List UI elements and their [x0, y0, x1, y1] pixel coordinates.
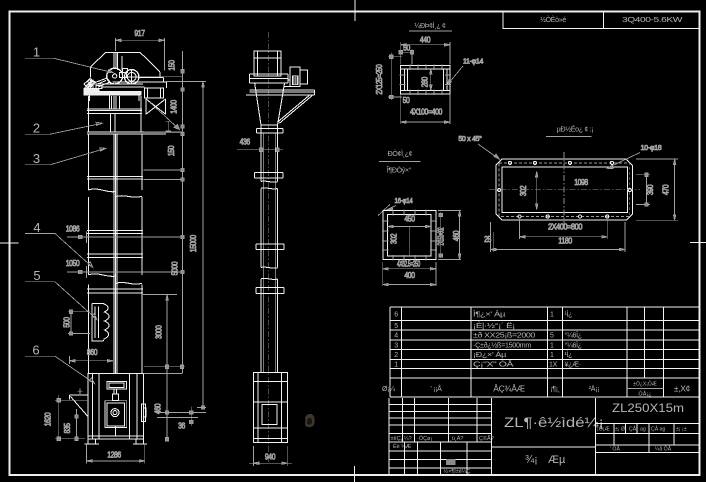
svg-text:¾¡: ¾¡: [525, 454, 538, 466]
svg-text:·Ç±ð¿½ß=1500mm: ·Ç±ð¿½ß=1500mm: [473, 341, 531, 349]
svg-text:4: 4: [394, 333, 398, 340]
svg-text:µÐ½Éо¿ ¢ :¡: µÐ½Éо¿ ¢ :¡: [557, 125, 594, 134]
svg-text:436: 436: [240, 137, 251, 147]
svg-text:ÇÅ: ÇÅ: [629, 426, 637, 433]
svg-text:5000: 5000: [170, 261, 180, 275]
svg-text:1: 1: [33, 45, 40, 60]
svg-text:5: 5: [33, 268, 40, 283]
svg-text:2X125=250: 2X125=250: [374, 64, 384, 95]
svg-text:150: 150: [166, 145, 176, 156]
svg-text:3000: 3000: [154, 325, 164, 339]
svg-text:50: 50: [403, 43, 410, 53]
svg-text:¥¿Æ·: ¥¿Æ·: [565, 361, 581, 368]
svg-text:Ø¡¼: Ø¡¼: [382, 386, 395, 393]
svg-text:±¡ Ø¡: ±¡ Ø¡: [615, 427, 627, 433]
svg-text:16-φ14: 16-φ14: [395, 198, 413, 205]
svg-text:6: 6: [32, 343, 39, 358]
svg-text:±ð XX25¡ß=2000: ±ð XX25¡ß=2000: [473, 332, 536, 340]
svg-text:¡Ö¡Æ: ¡Ö¡Æ: [597, 426, 610, 433]
svg-text:¸ü¸Ä?: ¸ü¸Ä?: [450, 435, 463, 442]
svg-text:¡Ð¿×' Àµ: ¡Ð¿×' Àµ: [473, 350, 506, 359]
svg-text:11-φ14: 11-φ14: [463, 59, 484, 66]
svg-text:25: 25: [484, 234, 491, 244]
svg-text:280: 280: [420, 76, 430, 87]
svg-text:1: 1: [550, 342, 554, 349]
svg-text:¼å ÒÅ: ¼å ÒÅ: [655, 446, 672, 453]
svg-text:400: 400: [404, 270, 415, 280]
svg-text:460: 460: [451, 230, 461, 241]
svg-text:°¼6Ì¿: °¼6Ì¿: [565, 331, 582, 340]
svg-text:¹Ì¿: ¹Ì¿: [565, 350, 573, 359]
svg-text:50: 50: [403, 95, 410, 105]
svg-text:3: 3: [394, 342, 398, 349]
svg-text:°¼6Ì¿: °¼6Ì¿: [565, 340, 582, 349]
svg-text:½ÒÈò»é: ½ÒÈò»é: [540, 15, 566, 24]
svg-text:1: 1: [550, 312, 554, 319]
svg-text:4: 4: [33, 220, 40, 235]
svg-text:1: 1: [550, 352, 554, 359]
svg-text:50 x 45°: 50 x 45°: [458, 135, 482, 143]
svg-text:²Ä¡¡: ²Ä¡¡: [589, 385, 599, 393]
svg-text:1X: 1X: [549, 361, 558, 368]
svg-text:' ÒÅ: ' ÒÅ: [610, 446, 620, 453]
svg-text:ÐÒ¢Ì¸¿¢: ÐÒ¢Ì¸¿¢: [388, 149, 413, 158]
svg-text:6: 6: [394, 312, 398, 319]
svg-text:470: 470: [661, 184, 671, 195]
svg-text:1: 1: [394, 361, 398, 368]
svg-text:302: 302: [389, 233, 399, 244]
svg-text:Ç¡"X" ÒÅ: Ç¡"X" ÒÅ: [473, 359, 514, 368]
svg-text:ÒÅ¡¿: ÒÅ¡¿: [638, 391, 651, 398]
svg-text:ZL¶·ê½ìdé¼¡: ZL¶·ê½ìdé¼¡: [504, 415, 604, 430]
svg-text:1050: 1050: [66, 258, 80, 268]
svg-text:3: 3: [33, 151, 40, 166]
svg-text:440: 440: [420, 35, 431, 45]
svg-text:390: 390: [645, 184, 655, 195]
svg-text:2X400=800: 2X400=800: [548, 222, 583, 232]
svg-text:302: 302: [518, 185, 528, 196]
svg-text:Î¶ÐÒý×°: Î¶ÐÒý×°: [386, 166, 412, 175]
svg-text:5: 5: [394, 323, 398, 330]
svg-text:1400: 1400: [169, 100, 179, 114]
svg-text:450: 450: [404, 214, 415, 224]
svg-text:±êÇ¿: ±êÇ¿: [391, 436, 404, 442]
svg-text:36: 36: [178, 421, 185, 431]
svg-text:ZL250X15m: ZL250X15m: [612, 403, 684, 415]
svg-text:¼?: ¼?: [404, 436, 412, 442]
svg-text:Ì¶¿×' Àµ: Ì¶¿×' Àµ: [473, 310, 505, 319]
svg-text:¡È|·½°¡´ Ë¡: ¡È|·½°¡´ Ë¡: [473, 321, 515, 330]
svg-text:ÇÅ ag: ÇÅ ag: [651, 426, 666, 433]
svg-text:5: 5: [550, 333, 554, 340]
svg-text:1086: 1086: [66, 224, 80, 234]
svg-text:ÅÇ¾ÅÆ: ÅÇ¾ÅÆ: [493, 384, 525, 394]
svg-text:15000: 15000: [188, 235, 198, 253]
svg-text:2: 2: [394, 352, 398, 359]
svg-text:¹Ì¿: ¹Ì¿: [565, 310, 573, 319]
svg-text:4X62.5=250: 4X62.5=250: [397, 258, 420, 268]
svg-text:Éè ¼Æ: Éè ¼Æ: [393, 443, 412, 450]
svg-text:¼ÐÞ¢Ì¸¿ ¢: ¼ÐÞ¢Ì¸¿ ¢: [414, 21, 446, 30]
svg-text:1620: 1620: [43, 412, 53, 426]
svg-text:2: 2: [33, 121, 40, 136]
svg-text:Ç©Ã?: Ç©Ã?: [479, 435, 494, 442]
svg-text:·ÖÇø¡: ·ÖÇø¡: [417, 435, 432, 442]
svg-text:10-φ18: 10-φ18: [641, 145, 662, 152]
svg-text:835: 835: [62, 423, 72, 434]
svg-text:±¡ ¡±: ±¡ ¡±: [676, 427, 687, 433]
svg-text:500: 500: [62, 317, 72, 328]
svg-text:3Q400-5.6KW: 3Q400-5.6KW: [622, 17, 683, 24]
svg-text:ag: ag: [640, 427, 646, 433]
svg-text:1286: 1286: [107, 450, 121, 460]
svg-text:' ¡¡Å: ' ¡¡Å: [430, 384, 442, 393]
svg-text:460: 460: [153, 403, 163, 414]
svg-text:150: 150: [167, 60, 177, 71]
svg-text:1098: 1098: [574, 177, 588, 187]
svg-text:½×¶Î±ê¼Ç: ½×¶Î±ê¼Ç: [444, 468, 471, 475]
svg-text:Æµ: Æµ: [548, 454, 566, 466]
svg-text:917: 917: [134, 28, 145, 38]
svg-text:2X151=302: 2X151=302: [436, 227, 446, 245]
svg-text:1180: 1180: [558, 236, 572, 246]
svg-text:±,X¢: ±,X¢: [674, 384, 691, 394]
svg-text:¡¶¡¸: ¡¶¡¸: [550, 386, 560, 393]
svg-text:860: 860: [87, 347, 98, 357]
svg-text:940: 940: [265, 452, 276, 462]
svg-text:4X100=400: 4X100=400: [410, 107, 443, 117]
svg-text:±Ö¿X¡ÒÆ: ±Ö¿X¡ÒÆ: [633, 381, 657, 388]
